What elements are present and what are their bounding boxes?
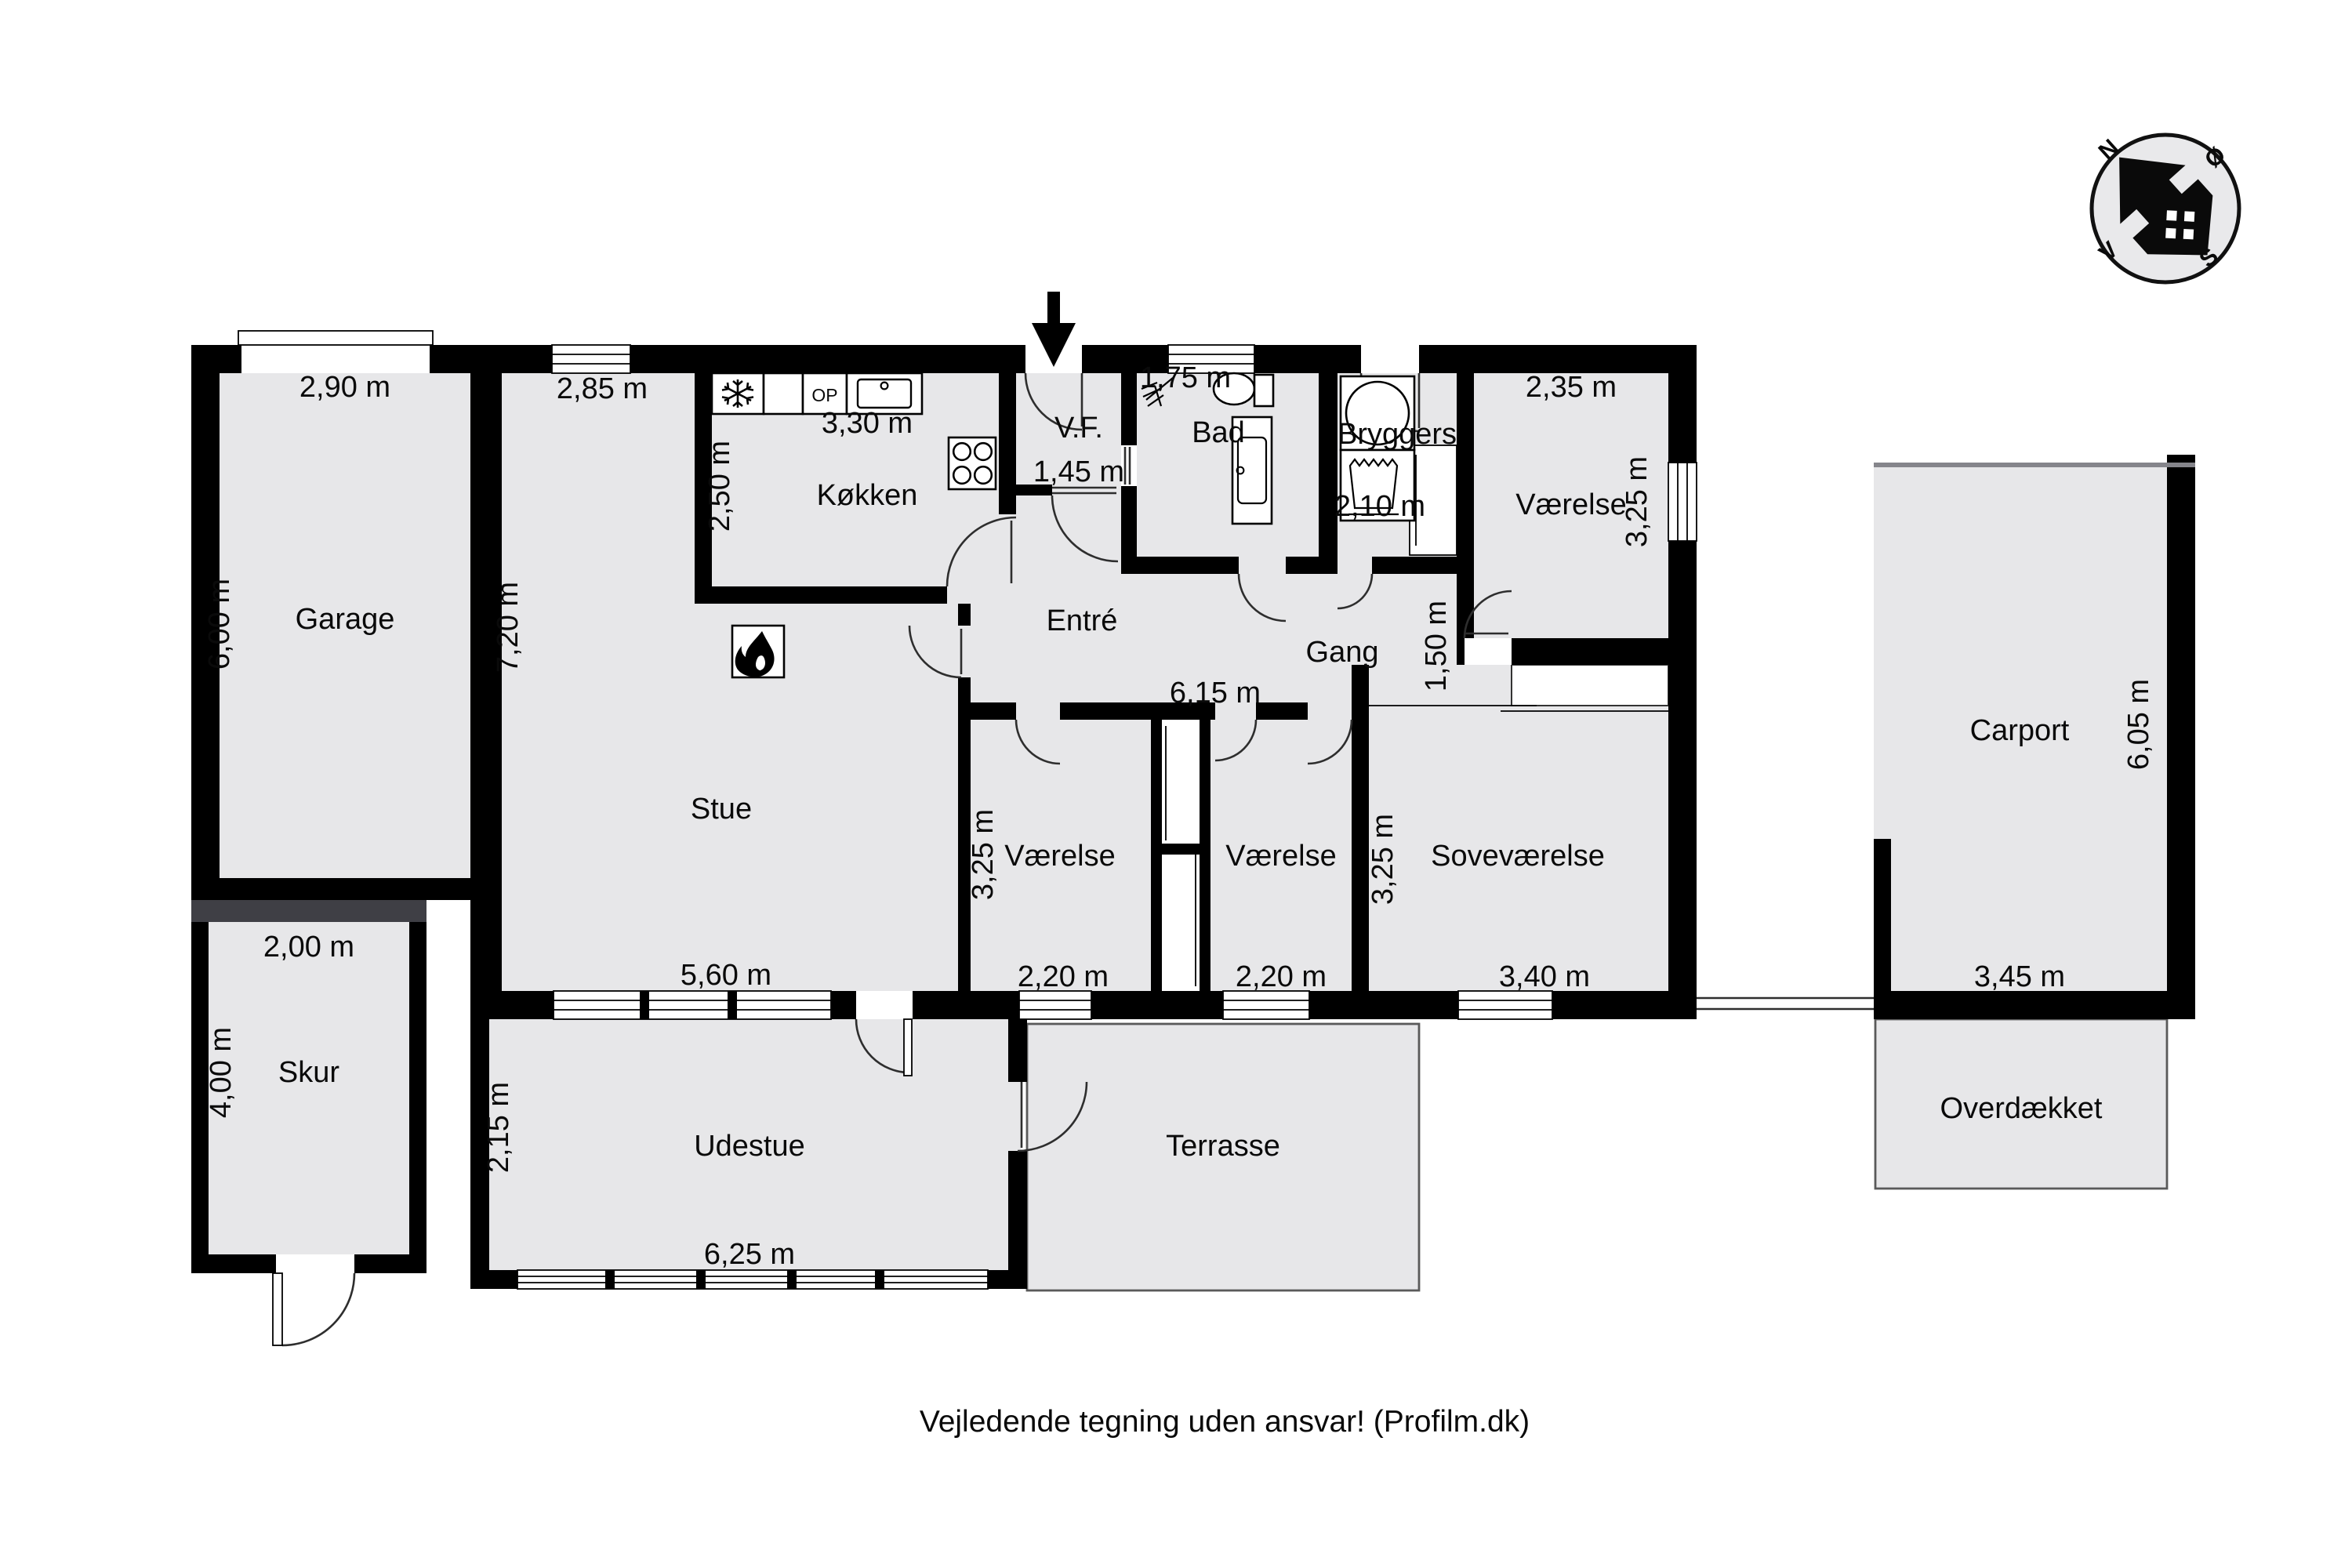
- dim-sovevaerelse-h: 3,25 m: [1367, 814, 1399, 905]
- dim-garage-w: 2,90 m: [299, 371, 390, 404]
- dim-bryggers-w: 2,10 m: [1334, 490, 1425, 523]
- dim-vaerelse-ne-w: 2,35 m: [1526, 371, 1617, 404]
- label-bryggers-name: Bryggers: [1338, 418, 1457, 451]
- footer-disclaimer: Vejledende tegning uden ansvar! (Profilm…: [920, 1405, 1530, 1439]
- floor-plan: N Ø S V Garage Stue Køkken OP V.F. Bad B…: [0, 0, 2352, 1568]
- carport-top-edge: [1874, 463, 2195, 467]
- label-vaerelse-ne-name: Værelse: [1515, 488, 1627, 521]
- garage-door-line: [238, 331, 433, 345]
- dim-sovevaerelse-w: 3,40 m: [1499, 960, 1590, 993]
- compass-icon: N Ø S V: [2087, 128, 2241, 285]
- dim-gang-h: 1,50 m: [1420, 601, 1453, 691]
- closet-sovevaerelse: [1512, 665, 1668, 706]
- label-oven: OP: [811, 385, 837, 405]
- label-skur-name: Skur: [278, 1056, 339, 1089]
- toilet-tank: [1254, 375, 1273, 406]
- window-vaerelse-v2: [1223, 991, 1309, 1019]
- dim-carport-h: 6,05 m: [2122, 679, 2155, 770]
- dim-vaerelse-v2-w: 2,20 m: [1236, 960, 1327, 993]
- dim-vaerelse-ne-h: 3,25 m: [1621, 456, 1653, 547]
- window-sovevaerelse: [1458, 991, 1552, 1019]
- label-sovevaerelse-name: Soveværelse: [1431, 840, 1605, 873]
- label-vaerelse-v1-name: Værelse: [1004, 840, 1116, 873]
- label-gang-name: Gang: [1306, 636, 1379, 669]
- dim-koekken-h: 2,50 m: [703, 441, 736, 532]
- dim-skur-h: 4,00 m: [205, 1027, 238, 1118]
- dim-skur-w: 2,00 m: [263, 931, 354, 964]
- closet-between-vaerelser: [1162, 720, 1200, 991]
- label-stue-name: Stue: [691, 793, 752, 826]
- label-bad-name: Bad: [1192, 416, 1245, 449]
- dim-vaerelse-v1-w: 2,20 m: [1018, 960, 1109, 993]
- window-vaerelse-v1: [1019, 991, 1091, 1019]
- dim-stue-wbottom: 5,60 m: [681, 959, 771, 992]
- dim-gang-w: 6,15 m: [1170, 677, 1261, 710]
- label-vf-name: V.F.: [1054, 412, 1103, 445]
- dim-udestue-h: 2,15 m: [482, 1082, 515, 1173]
- stove-icon: [949, 437, 996, 489]
- label-carport-name: Carport: [1970, 714, 2070, 747]
- dim-bad-w: 1,75 m: [1140, 361, 1231, 394]
- carport-connector-lines: [1697, 998, 1874, 1009]
- label-koekken-name: Køkken: [817, 479, 918, 512]
- label-terrasse-name: Terrasse: [1166, 1130, 1280, 1163]
- dim-koekken-w: 3,30 m: [822, 407, 913, 440]
- window-stue-top: [552, 345, 630, 373]
- dim-vf-w: 1,45 m: [1033, 456, 1124, 488]
- sink-icon: [858, 379, 911, 408]
- door-leaf-skur: [273, 1273, 282, 1345]
- divider-garage-skur: [191, 900, 426, 922]
- door-leaf-udestue: [904, 1019, 912, 1076]
- label-entre-name: Entré: [1047, 604, 1118, 637]
- counter-box: [764, 373, 803, 414]
- label-udestue-name: Udestue: [694, 1130, 805, 1163]
- dim-carport-w: 3,45 m: [1974, 960, 2065, 993]
- fireplace-icon: [732, 626, 784, 677]
- window-vaerelse-ne: [1668, 463, 1697, 541]
- dim-vaerelse-v1-h: 3,25 m: [967, 809, 1000, 900]
- dim-stue-h: 7,20 m: [492, 582, 524, 673]
- window-stue-bottom: [554, 991, 831, 1019]
- dim-stue-wtop: 2,85 m: [557, 372, 648, 405]
- dim-udestue-w: 6,25 m: [704, 1238, 795, 1271]
- label-garage-name: Garage: [296, 603, 395, 636]
- label-overdaekket-name: Overdækket: [1940, 1092, 2103, 1125]
- dim-garage-h: 6,00 m: [203, 579, 236, 670]
- window-udestue: [517, 1270, 988, 1289]
- label-vaerelse-v2-name: Værelse: [1225, 840, 1337, 873]
